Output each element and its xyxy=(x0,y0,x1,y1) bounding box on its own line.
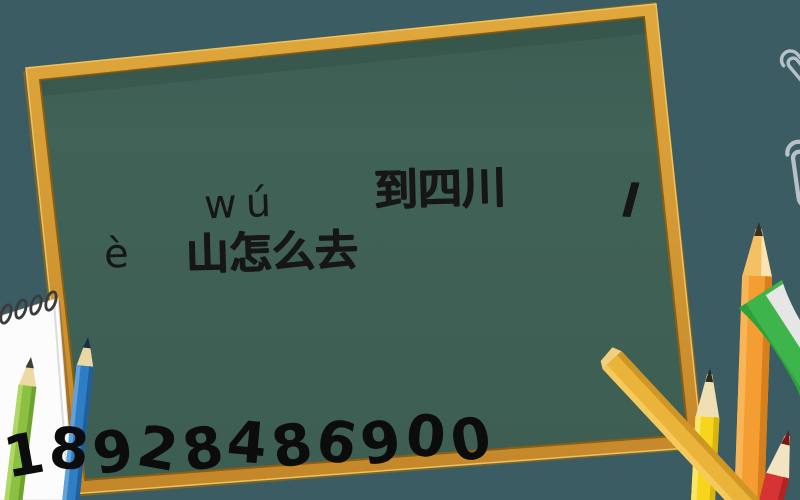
board-line1-pinyin: wú xyxy=(203,183,280,226)
board-line1-tail: l xyxy=(620,178,639,225)
paperclip-icon xyxy=(778,47,800,98)
board-line2-pinyin: è xyxy=(103,233,138,274)
board-line2-hanzi: 山怎么去 xyxy=(185,230,358,277)
pencil-orange xyxy=(734,221,774,500)
board-line1-hanzi: 到四川 xyxy=(373,166,506,213)
paperclip-icon xyxy=(786,140,800,207)
promo-banner: wú 到四川 l è 山怎么去 18928486900 xyxy=(0,0,800,500)
